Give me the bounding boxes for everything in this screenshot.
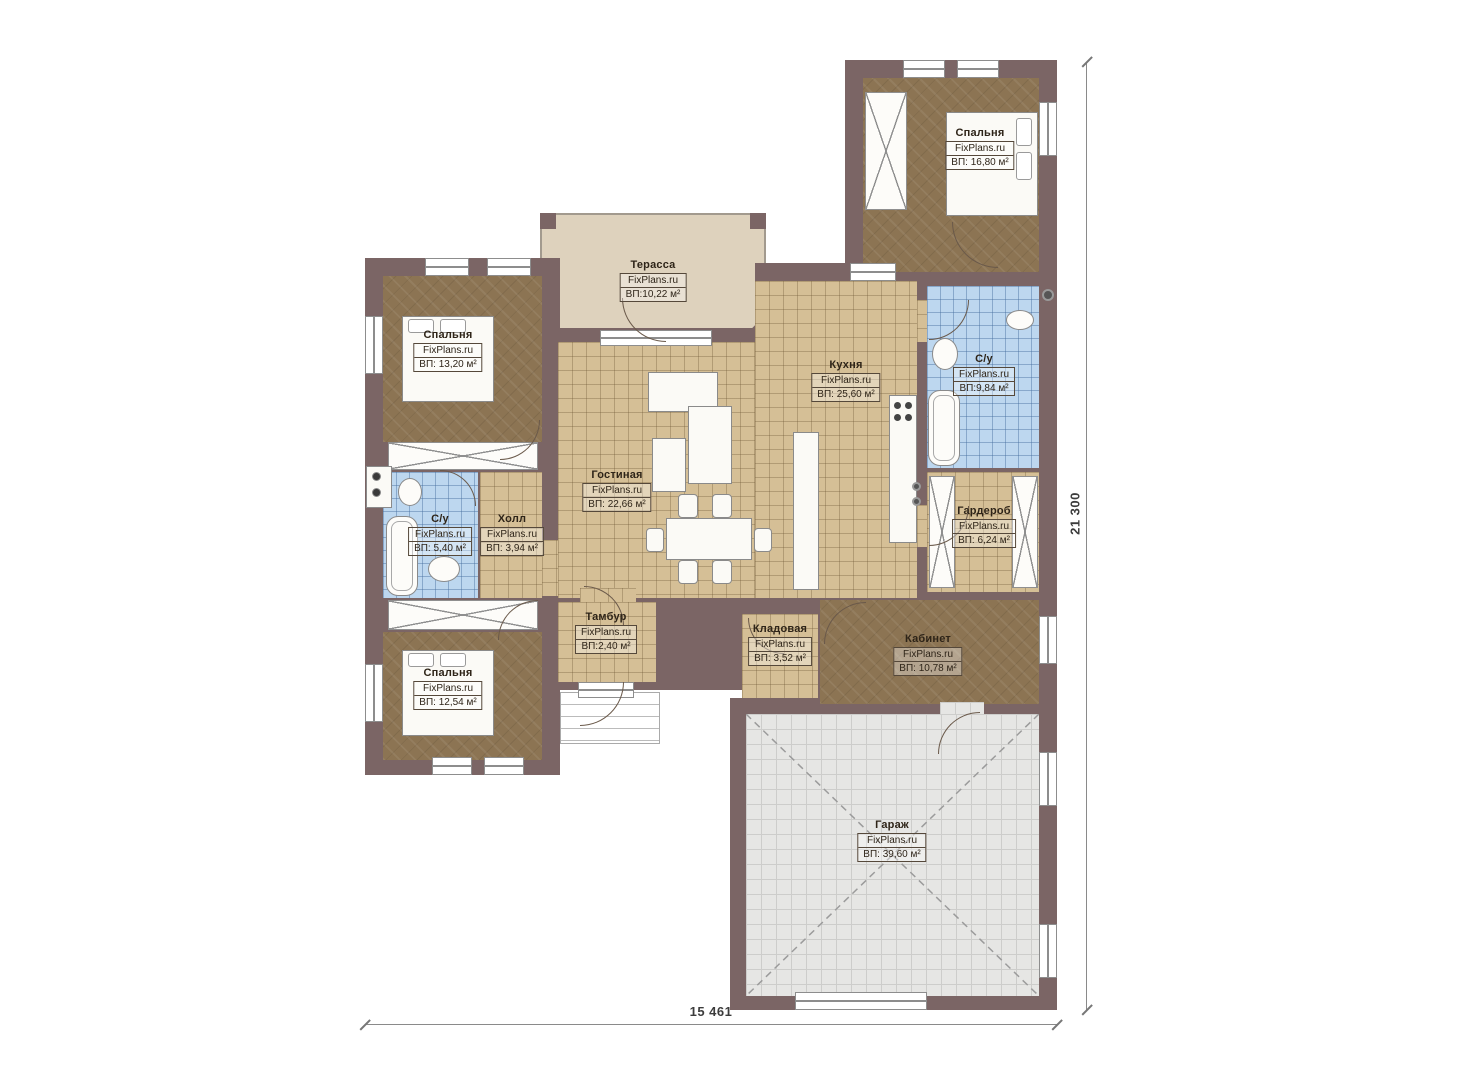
chair [678,494,698,518]
label-hall: Холл FixPlans.ru ВП: 3,94 м² [480,512,544,556]
dimension-height-label: 21 300 [1068,469,1083,559]
room-info-box: FixPlans.ru ВП: 16,80 м² [945,141,1014,170]
room-info-box: FixPlans.ru ВП: 3,52 м² [748,637,812,666]
label-bathroom-right: С/у FixPlans.ru ВП:9,84 м² [953,352,1015,396]
label-kitchen: Кухня FixPlans.ru ВП: 25,60 м² [811,358,880,402]
room-info-box: FixPlans.ru ВП:9,84 м² [953,367,1015,396]
opening-hall-living [542,540,558,596]
room-name: Гараж [875,818,909,832]
room-name: Спальня [956,126,1005,140]
window [425,258,469,276]
heater-knob [372,488,381,497]
room-name: Терасса [630,258,675,272]
room-name: Спальня [424,666,473,680]
heater-knob [372,472,381,481]
watermark: FixPlans.ru [414,344,481,358]
dimension-width-label: 15 461 [676,1004,746,1019]
watermark: FixPlans.ru [946,142,1013,156]
watermark: FixPlans.ru [953,520,1015,534]
room-area: ВП: 3,52 м² [749,652,811,665]
room-area: ВП:2,40 м² [576,640,636,653]
label-bedroom-top-left: Спальня FixPlans.ru ВП: 13,20 м² [413,328,482,372]
room-area: ВП:10,22 м² [621,288,686,301]
window [1039,924,1057,978]
window [432,757,472,775]
room-name: Холл [498,512,526,526]
garage-door [795,992,927,1010]
label-terrace: Терасса FixPlans.ru ВП:10,22 м² [620,258,687,302]
window [487,258,531,276]
sofa [688,406,732,484]
kitchen-island [793,432,819,590]
watermark: FixPlans.ru [414,682,481,696]
watermark: FixPlans.ru [583,484,650,498]
dimension-line-width [365,1024,1057,1025]
sink [428,556,460,582]
toilet [398,478,422,506]
watermark: FixPlans.ru [409,528,471,542]
dimension-tick [1082,1004,1093,1015]
watermark: FixPlans.ru [812,374,879,388]
room-name: С/у [431,512,449,526]
vent-icon [912,482,921,491]
chair [712,560,732,584]
label-bedroom-top-right: Спальня FixPlans.ru ВП: 16,80 м² [945,126,1014,170]
window [365,316,383,374]
dimension-tick [1082,56,1093,67]
watermark: FixPlans.ru [576,626,636,640]
terrace-column [750,213,766,229]
vent-icon [912,497,921,506]
label-bedroom-bottom-left: Спальня FixPlans.ru ВП: 12,54 м² [413,666,482,710]
room-area: ВП: 25,60 м² [812,388,879,401]
room-name: Кухня [829,358,862,372]
window [1039,102,1057,156]
window [903,60,945,78]
watermark: FixPlans.ru [954,368,1014,382]
room-info-box: FixPlans.ru ВП: 39,60 м² [857,833,926,862]
floor-plan: Терасса FixPlans.ru ВП:10,22 м² Спальня … [0,0,1474,1080]
label-wardrobe: Гардероб FixPlans.ru ВП: 6,24 м² [952,504,1016,548]
room-info-box: FixPlans.ru ВП: 10,78 м² [893,647,962,676]
room-area: ВП: 3,94 м² [481,542,543,555]
room-area: ВП: 13,20 м² [414,358,481,371]
label-storage: Кладовая FixPlans.ru ВП: 3,52 м² [748,622,812,666]
window [957,60,999,78]
room-name: С/у [975,352,993,366]
pillow [1016,152,1032,180]
room-area: ВП: 10,78 м² [894,662,961,675]
room-name: Спальня [424,328,473,342]
room-area: ВП: 16,80 м² [946,156,1013,169]
window [850,263,896,281]
room-info-box: FixPlans.ru ВП: 6,24 м² [952,519,1016,548]
wardrobe-closet [865,92,907,210]
room-info-box: FixPlans.ru ВП: 12,54 м² [413,681,482,710]
chair [712,494,732,518]
pillow [1016,118,1032,146]
label-office: Кабинет FixPlans.ru ВП: 10,78 м² [893,632,962,676]
stove-burner [905,414,912,421]
room-info-box: FixPlans.ru ВП: 3,94 м² [480,527,544,556]
bathtub [928,390,960,466]
room-area: ВП: 39,60 м² [858,848,925,861]
watermark: FixPlans.ru [749,638,811,652]
label-living-room: Гостиная FixPlans.ru ВП: 22,66 м² [582,468,651,512]
opening-kitchen-bath [917,300,927,342]
vent-icon [1042,289,1054,301]
label-vestibule: Тамбур FixPlans.ru ВП:2,40 м² [575,610,637,654]
window [1039,752,1057,806]
stove-burner [905,402,912,409]
label-bathroom-left: С/у FixPlans.ru ВП: 5,40 м² [408,512,472,556]
room-info-box: FixPlans.ru ВП:10,22 м² [620,273,687,302]
room-area: ВП: 5,40 м² [409,542,471,555]
room-name: Кладовая [753,622,807,636]
window [365,664,383,722]
watermark: FixPlans.ru [894,648,961,662]
dimension-line-height [1086,62,1087,1010]
room-name: Тамбур [585,610,626,624]
room-info-box: FixPlans.ru ВП: 13,20 м² [413,343,482,372]
stove-burner [894,402,901,409]
dining-table [666,518,752,560]
pillow [440,653,466,667]
coffee-table [652,438,686,492]
room-info-box: FixPlans.ru ВП: 25,60 м² [811,373,880,402]
chair [678,560,698,584]
chair [754,528,772,552]
room-area: ВП: 6,24 м² [953,534,1015,547]
terrace-column [540,213,556,229]
toilet [1006,310,1034,330]
watermark: FixPlans.ru [621,274,686,288]
room-area: ВП:9,84 м² [954,382,1014,395]
room-area: ВП: 12,54 м² [414,696,481,709]
room-name: Гардероб [957,504,1011,518]
room-name: Гостиная [591,468,642,482]
watermark: FixPlans.ru [858,834,925,848]
room-area: ВП: 22,66 м² [583,498,650,511]
room-info-box: FixPlans.ru ВП:2,40 м² [575,625,637,654]
room-info-box: FixPlans.ru ВП: 5,40 м² [408,527,472,556]
room-name: Кабинет [905,632,951,646]
opening-kitchen-wardrobe [917,505,927,547]
stove-burner [894,414,901,421]
pillow [408,653,434,667]
watermark: FixPlans.ru [481,528,543,542]
room-info-box: FixPlans.ru ВП: 22,66 м² [582,483,651,512]
window [1039,616,1057,664]
label-garage: Гараж FixPlans.ru ВП: 39,60 м² [857,818,926,862]
chair [646,528,664,552]
window [484,757,524,775]
